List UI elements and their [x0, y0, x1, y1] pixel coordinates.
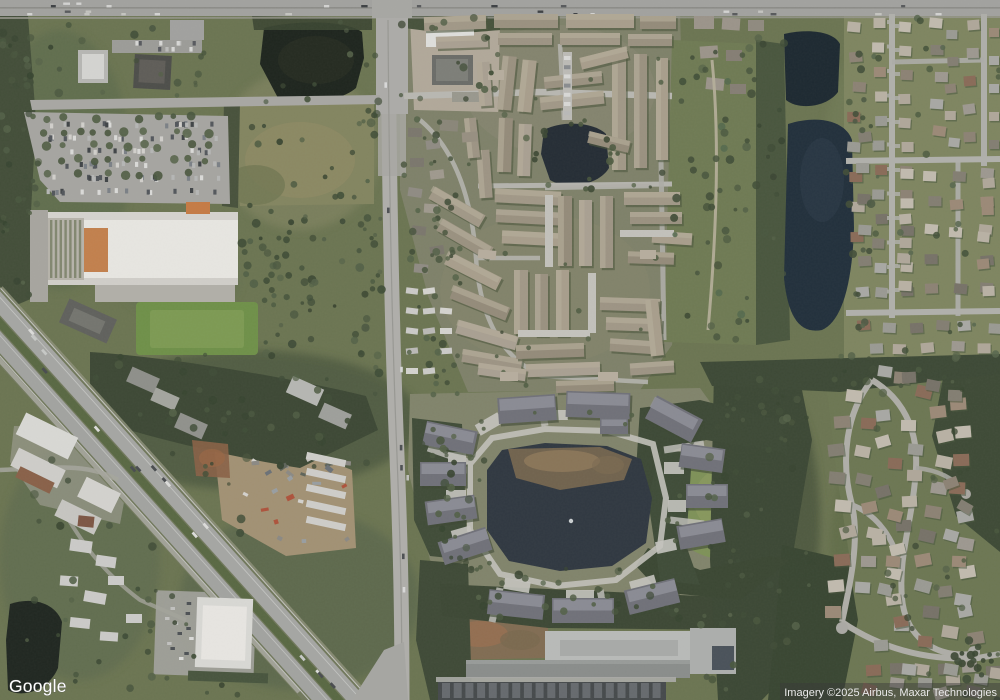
svg-text:Imagery ©2025 Airbus, Maxar Te: Imagery ©2025 Airbus, Maxar Technologies [784, 687, 997, 699]
svg-text:Google: Google [9, 676, 67, 696]
